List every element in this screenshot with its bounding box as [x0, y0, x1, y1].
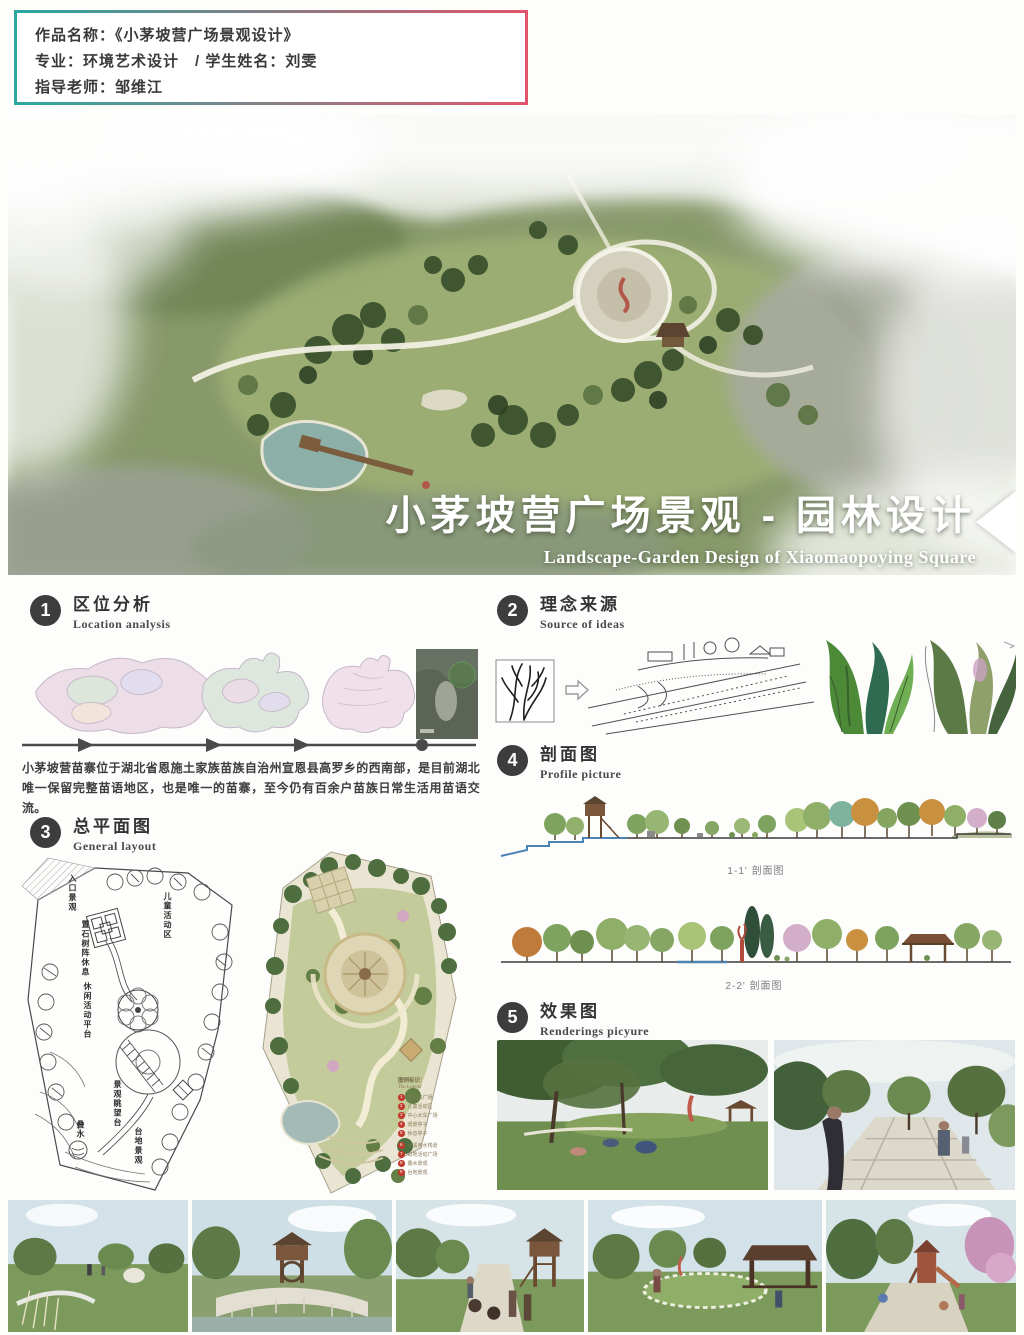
section-4-title: 剖面图 — [540, 745, 621, 764]
concept-sketches-graphic — [488, 630, 1016, 740]
plan-label-lookout: 景观眺望台 — [112, 1080, 122, 1128]
project-info-box: 作品名称：《小茅坡营广场景观设计》 专业：环境艺术设计 / 学生姓名：刘雯 指导… — [14, 10, 528, 105]
plan-label-leisure-platform: 休闲活动平台 — [82, 982, 92, 1039]
hero-title-en: Landscape-Garden Design of Xiaomaopoying… — [385, 547, 976, 568]
legend-number-dot: 1 — [398, 1094, 405, 1101]
rendering-lawn-scene — [497, 1040, 768, 1190]
section-3-header: 3 总平面图 General layout — [30, 817, 156, 854]
legend-number-dot: 9 — [398, 1169, 405, 1176]
legend-item: 1主入口广场 — [398, 1094, 470, 1101]
section-3-title: 总平面图 — [73, 817, 156, 836]
profile-2-2-drawing — [497, 882, 1015, 974]
concept-swirl-color — [826, 640, 913, 734]
project-title: 作品名称：《小茅坡营广场景观设计》 — [35, 23, 507, 49]
legend-item: 9台地景观 — [398, 1169, 470, 1176]
map-xuanen — [322, 655, 414, 732]
section-5-header: 5 效果图 Renderings picyure — [497, 1002, 649, 1039]
watchtower — [583, 796, 619, 838]
plan-label-entrance: 入口景观 — [67, 874, 77, 912]
section-5-title: 效果图 — [540, 1002, 649, 1021]
project-advisor: 指导老师：邹维江 — [35, 75, 507, 101]
arrowhead-icon — [294, 738, 310, 752]
profile-1-1-label: 1-1' 剖面图 — [497, 862, 1015, 877]
legend-item: 2儿童活动区 — [398, 1103, 470, 1110]
legend-title-en: The Legend — [398, 1085, 470, 1091]
section-2-header: 2 理念来源 Source of ideas — [497, 595, 625, 632]
flow-arrow-icon — [566, 681, 588, 699]
profile-1-1 — [497, 778, 1015, 862]
section-4-badge: 4 — [497, 745, 528, 776]
location-description: 小茅坡营苗寨位于湖北省恩施土家族苗族自治州宣恩县高罗乡的西南部，是目前湖北唯一保… — [22, 758, 480, 818]
legend-number-dot: 8 — [398, 1160, 405, 1167]
legend-number-dot: 3 — [398, 1112, 405, 1119]
section-1-title: 区位分析 — [73, 595, 171, 614]
profile-2-2-label: 2-2' 剖面图 — [495, 977, 1013, 992]
plan-label-stone-rest: 置石树阵休息 — [80, 920, 90, 977]
section-5-badge: 5 — [497, 1002, 528, 1033]
profile-2-2 — [497, 882, 1015, 974]
legend-item: 7山地活动广场 — [398, 1151, 470, 1158]
map-hubei — [36, 658, 211, 733]
arrowhead-icon — [78, 738, 94, 752]
master-plan: 图例标识： The Legend 1主入口广场 2儿童活动区 3中心水车广场 4… — [253, 846, 485, 1198]
legend-number-dot: 5 — [398, 1130, 405, 1137]
legend-number-dot: 7 — [398, 1151, 405, 1158]
plan-label-children: 儿童活动区 — [162, 892, 172, 940]
hero-title-cn: 小茅坡营广场景观 - 园林设计 — [385, 483, 976, 541]
legend-title-cn: 图例标识： — [398, 1078, 470, 1085]
section-1-header: 1 区位分析 Location analysis — [30, 595, 171, 632]
section-2-title: 理念来源 — [540, 595, 625, 614]
plan-legend: 图例标识： The Legend 1主入口广场 2儿童活动区 3中心水车广场 4… — [398, 1078, 470, 1178]
concept-sketches — [488, 630, 1016, 740]
hero-title-block: 小茅坡营广场景观 - 园林设计 Landscape-Garden Design … — [385, 483, 976, 568]
plan-label-cascade: 叠水 — [75, 1120, 85, 1139]
bottom-rendering-1 — [8, 1200, 188, 1332]
section-2-badge: 2 — [497, 595, 528, 626]
presentation-board: 作品名称：《小茅坡营广场景观设计》 专业：环境艺术设计 / 学生姓名：刘雯 指导… — [0, 0, 1024, 1335]
bottom-rendering-4 — [588, 1200, 822, 1332]
hero-triangle-icon — [976, 491, 1016, 553]
profile-1-1-drawing — [497, 778, 1015, 862]
legend-number-dot: 4 — [398, 1121, 405, 1128]
legend-number-dot: 6 — [398, 1142, 405, 1149]
location-maps — [18, 643, 483, 753]
hero-aerial-rendering: 小茅坡营广场景观 - 园林设计 Landscape-Garden Design … — [8, 115, 1016, 575]
endpoint-dot-icon — [416, 739, 428, 751]
maps-graphic — [18, 643, 483, 753]
section-1-subtitle: Location analysis — [73, 617, 171, 632]
project-major-student: 专业：环境艺术设计 / 学生姓名：刘雯 — [35, 49, 507, 75]
water-line — [501, 838, 627, 856]
plan-label-terrace: 台地景观 — [133, 1127, 143, 1165]
bottom-rendering-5 — [826, 1200, 1016, 1332]
legend-item: 5休息亭子 — [398, 1130, 470, 1137]
rendering-plaza-scene — [774, 1040, 1015, 1190]
legend-item: 4观景亭子 — [398, 1121, 470, 1128]
red-sculpture-profile — [740, 940, 744, 962]
legend-item: 3中心水车广场 — [398, 1112, 470, 1119]
arrowhead-icon — [206, 738, 222, 752]
section-4-header: 4 剖面图 Profile picture — [497, 745, 621, 782]
perspective-sketch — [588, 638, 814, 734]
legend-item: 8叠水景观 — [398, 1160, 470, 1167]
section-3-badge: 3 — [30, 817, 61, 848]
concept-swirl-textured — [925, 640, 1016, 734]
legend-item: 6小溪亲水栈道 — [398, 1142, 470, 1149]
bottom-rendering-3 — [396, 1200, 584, 1332]
bottom-rendering-2 — [192, 1200, 392, 1332]
section-5-subtitle: Renderings picyure — [540, 1024, 649, 1039]
legend-number-dot: 2 — [398, 1103, 405, 1110]
section-1-badge: 1 — [30, 595, 61, 626]
sketch-plan: 入口景观 儿童活动区 置石树阵休息 休闲活动平台 景观眺望台 叠水 台地景观 — [20, 852, 250, 1197]
